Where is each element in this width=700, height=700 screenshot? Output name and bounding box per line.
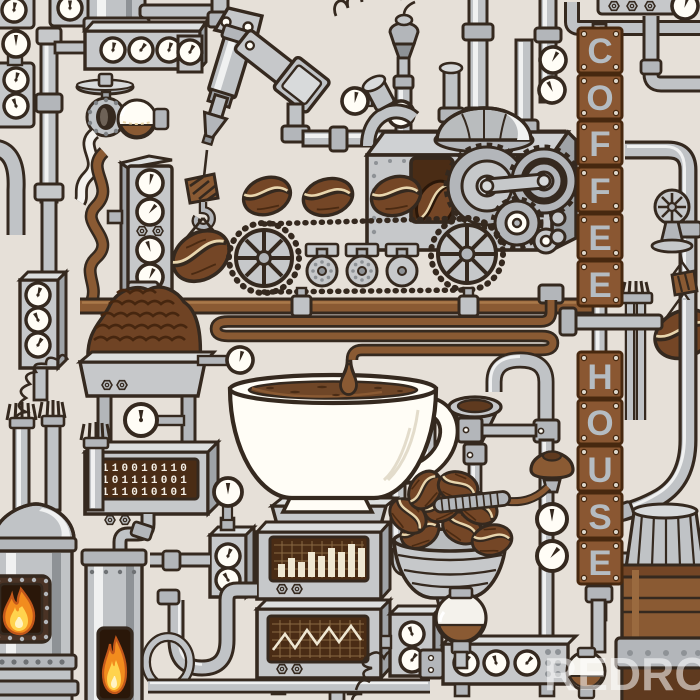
svg-text:H: H <box>587 358 612 397</box>
svg-text:E: E <box>588 266 611 305</box>
svg-text:S: S <box>588 498 611 537</box>
svg-text:C: C <box>587 32 612 71</box>
svg-text:111010101: 111010101 <box>102 487 190 499</box>
svg-text:E: E <box>588 219 611 258</box>
svg-text:O: O <box>586 404 613 443</box>
svg-text:101111001: 101111001 <box>102 475 190 487</box>
svg-text:E: E <box>588 544 611 583</box>
svg-text:F: F <box>589 125 610 164</box>
svg-text:REDRO: REDRO <box>544 648 700 700</box>
svg-text:F: F <box>589 172 610 211</box>
svg-text:U: U <box>587 451 612 490</box>
svg-text:O: O <box>586 79 613 118</box>
svg-text:110010110: 110010110 <box>102 463 190 475</box>
